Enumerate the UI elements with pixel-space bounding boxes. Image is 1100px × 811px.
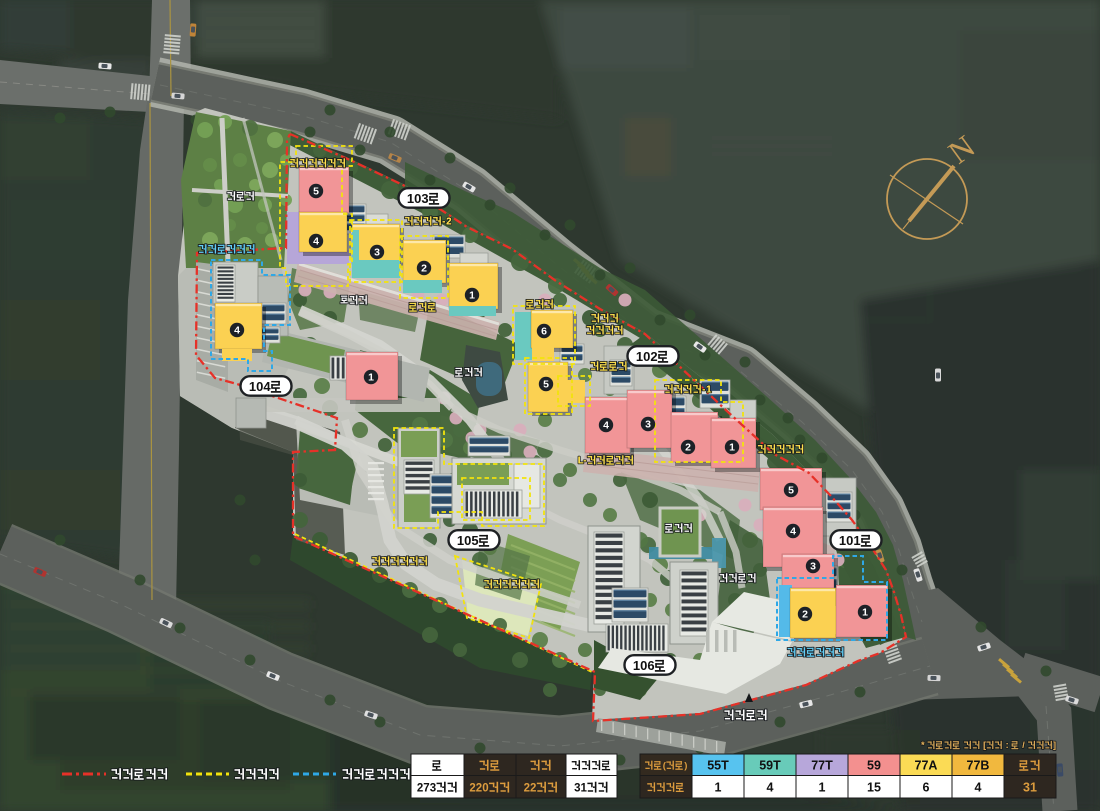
svg-text:1: 1 [862,607,868,619]
svg-text:2: 2 [446,217,452,228]
svg-text:2: 2 [802,609,808,621]
svg-text:0: 0 [846,533,853,548]
svg-text:59T: 59T [759,758,781,772]
svg-text:55T: 55T [707,758,729,772]
svg-text:4: 4 [767,780,774,794]
svg-text:5: 5 [471,533,478,548]
svg-text:3: 3 [430,782,436,794]
svg-text:]: ] [1053,740,1056,750]
svg-text:1: 1 [636,349,643,364]
svg-text:77B: 77B [967,758,990,772]
svg-text:0: 0 [640,658,647,673]
svg-text:4: 4 [313,236,319,248]
svg-text:4: 4 [975,780,982,794]
svg-text:1: 1 [368,372,374,384]
svg-text:0: 0 [643,349,650,364]
svg-text:3: 3 [421,191,428,206]
svg-text:1: 1 [407,191,414,206]
svg-text:1: 1 [249,379,256,394]
svg-text:2: 2 [650,349,657,364]
svg-text:1: 1 [633,658,640,673]
svg-text:0: 0 [482,782,488,794]
svg-text:0: 0 [464,533,471,548]
svg-text:5: 5 [543,379,549,391]
svg-text:): ) [684,761,687,772]
svg-text:5: 5 [313,186,319,198]
svg-text:1: 1 [853,533,860,548]
svg-text:1: 1 [469,290,475,302]
svg-text:4: 4 [263,379,271,394]
svg-text:77A: 77A [915,758,938,772]
svg-text:31: 31 [1023,780,1037,794]
svg-text:[: [ [983,740,986,750]
svg-text:2: 2 [685,442,691,454]
svg-text:4: 4 [790,526,796,538]
svg-text:77T: 77T [811,758,833,772]
svg-text::: : [1006,740,1009,750]
svg-text:6: 6 [541,326,547,338]
svg-text:-: - [442,217,445,228]
svg-text:1: 1 [581,782,588,794]
svg-text:5: 5 [788,485,794,497]
svg-text:0: 0 [414,191,421,206]
svg-text:2: 2 [421,263,427,275]
svg-text:6: 6 [923,780,930,794]
svg-text:1: 1 [729,442,735,454]
svg-text:1: 1 [839,533,846,548]
svg-text:1: 1 [706,385,712,396]
svg-text:1: 1 [715,780,722,794]
svg-text:1: 1 [819,780,826,794]
svg-text:4: 4 [603,420,609,432]
svg-text:1: 1 [457,533,464,548]
svg-text:3: 3 [810,561,816,573]
svg-text:3: 3 [374,247,380,259]
svg-text:-: - [702,385,705,396]
svg-text:-: - [583,456,586,467]
svg-text:*: * [921,740,925,750]
svg-text:3: 3 [645,419,651,431]
svg-text:2: 2 [530,782,536,794]
svg-text:0: 0 [256,379,263,394]
svg-text:6: 6 [647,658,654,673]
svg-text:59: 59 [867,758,881,772]
svg-text:4: 4 [234,325,240,337]
svg-text:15: 15 [867,780,881,794]
